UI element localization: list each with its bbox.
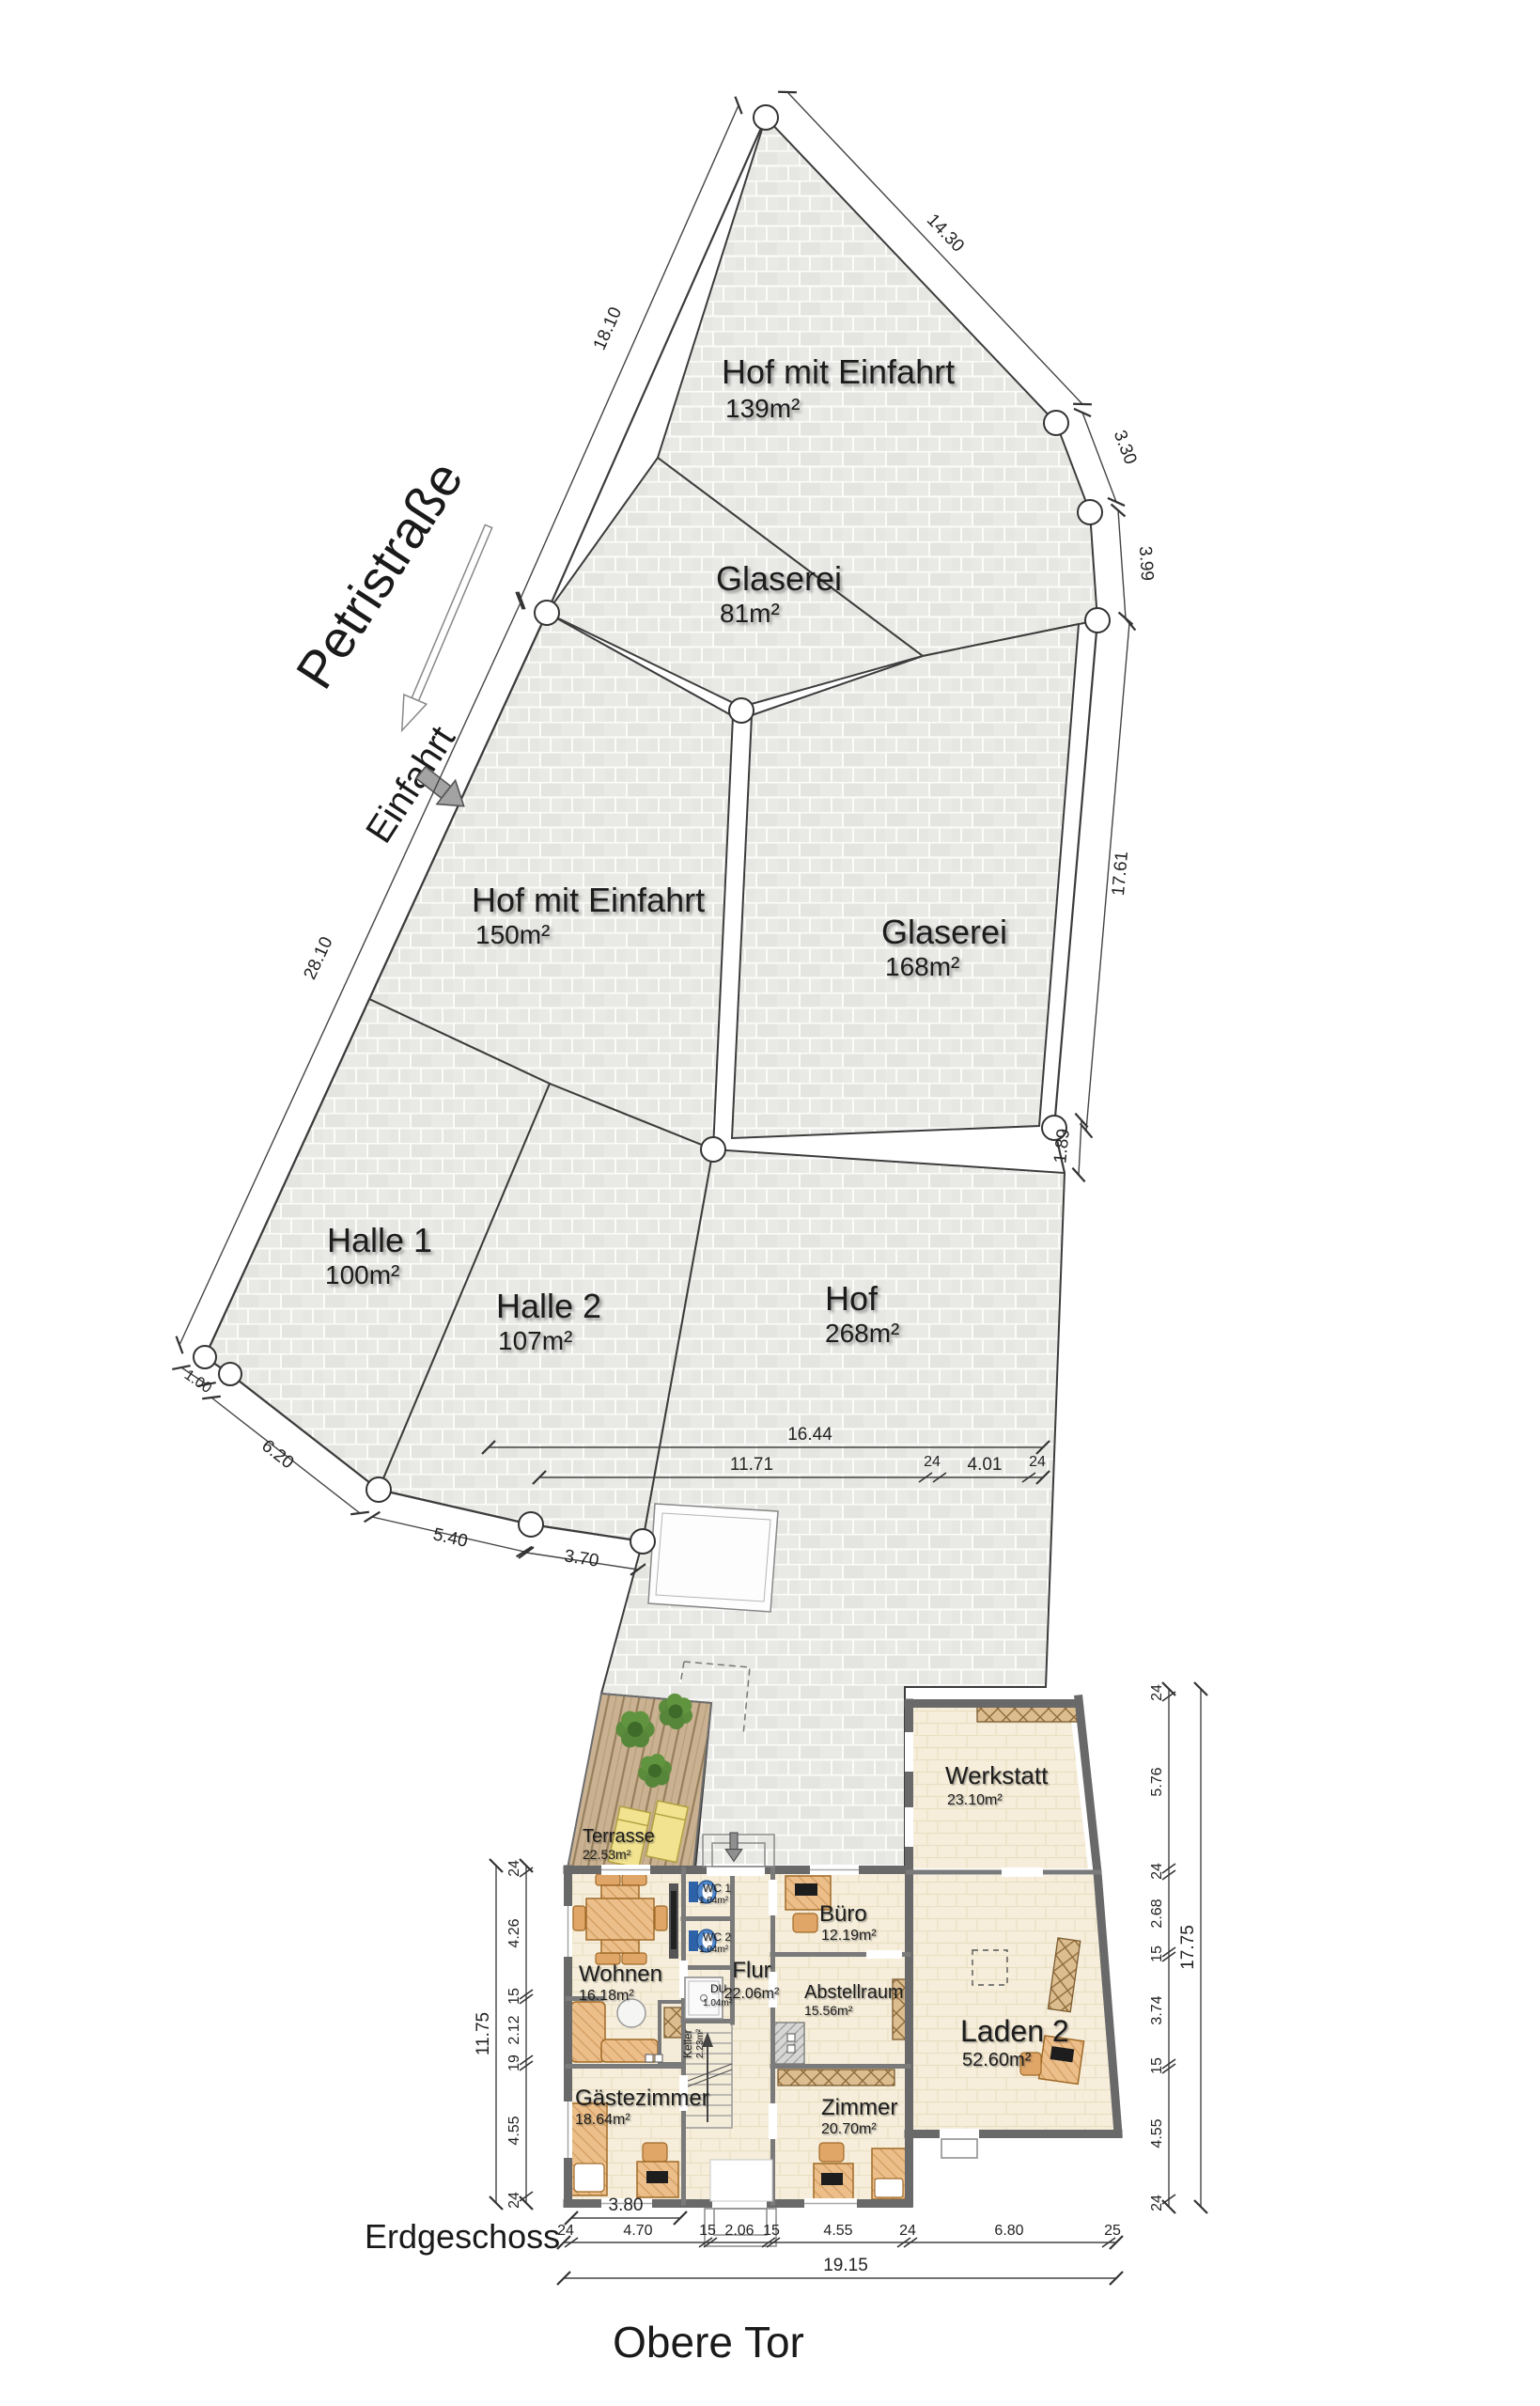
room-label: Abstellraum	[804, 1982, 904, 2003]
dim-label: 17.75	[1178, 1925, 1198, 1970]
room-label: Werkstatt	[945, 1761, 1049, 1789]
dim-label: 15	[763, 2223, 780, 2239]
parcel-label: Halle 2	[496, 1287, 601, 1325]
dim-label: 2.68	[1149, 1898, 1165, 1928]
dim-label: 11.71	[730, 1455, 773, 1475]
dim-label: 24	[899, 2223, 916, 2239]
laptop-icon	[646, 2171, 668, 2183]
street-name-label: Petristraße	[285, 450, 474, 698]
parcel-area: 100m²	[325, 1260, 399, 1289]
parcel-label: Hof	[825, 1279, 879, 1318]
dim-label: 24	[1149, 1863, 1165, 1880]
parcel-label: Hof mit Einfahrt	[472, 881, 705, 919]
dim-label: 24	[1029, 1454, 1046, 1470]
room-label: Terrasse	[583, 1826, 655, 1847]
room-label: Flur	[732, 1958, 770, 1983]
room-label: DU	[710, 1982, 726, 1995]
room-label: WC 2	[703, 1930, 731, 1944]
wall-notch	[774, 2023, 804, 2064]
dim-label: 15	[1149, 1945, 1165, 1962]
dim-label: 6.80	[994, 2223, 1023, 2239]
parcel-area: 168m²	[885, 952, 959, 981]
parcel-area: 139m²	[725, 394, 800, 423]
dim-label: 25	[1104, 2223, 1121, 2239]
room-label: Laden 2	[960, 2014, 1069, 2048]
dim-label: 11.75	[474, 2012, 493, 2055]
bed-pillow	[574, 2164, 604, 2192]
dim-label: 3.99	[1135, 545, 1158, 581]
dim-label: 24	[1149, 2195, 1165, 2211]
parcel-map	[194, 105, 1110, 1868]
floor-label: Erdgeschoss	[365, 2217, 560, 2256]
parcel-label: Halle 1	[327, 1221, 432, 1259]
dim-label: 15	[699, 2223, 716, 2239]
room-area: 16.18m²	[579, 1988, 634, 2004]
dim-label: 15	[506, 1988, 522, 2005]
room-area: 1.04m²	[703, 1998, 733, 2008]
parcel-glaserei-168-shape	[732, 624, 1079, 1138]
dim-label: 3.74	[1149, 1995, 1165, 2024]
parcel-area: 107m²	[498, 1326, 572, 1355]
dim-label: 6.20	[257, 1436, 297, 1473]
room-label: Keller	[681, 2029, 694, 2058]
room-area: 1.04m²	[699, 1896, 729, 1906]
bed-pillow	[875, 2179, 903, 2197]
parcel-label: Glaserei	[716, 559, 842, 598]
laptop-icon	[795, 1883, 817, 1896]
dim-label: 3.70	[563, 1546, 600, 1571]
dim-label: 19.15	[823, 2256, 868, 2275]
laden2-floor	[909, 1875, 1114, 2132]
page-title: Obere Tor	[613, 2318, 804, 2367]
dim-label: 4.70	[623, 2223, 652, 2239]
dim-label: 17.61	[1109, 851, 1132, 897]
room-area: 15.56m²	[804, 2003, 853, 2018]
dim-label: 3.30	[1110, 428, 1141, 467]
dim-label: 4.55	[1149, 2118, 1165, 2148]
dim-label: 28.10	[300, 934, 336, 983]
dim-label: 2.06	[724, 2223, 754, 2239]
dim-label: 15	[1149, 2057, 1165, 2074]
dim-label: 4.26	[506, 1918, 522, 1947]
room-area: 22.06m²	[724, 1986, 780, 2002]
parcel-area: 268m²	[825, 1319, 899, 1348]
parcel-area: 150m²	[475, 920, 550, 949]
room-area: 1.04m²	[699, 1945, 729, 1955]
dim-label: 24	[506, 1860, 522, 1877]
room-area: 22.53m²	[583, 1847, 631, 1862]
room-label: Wohnen	[579, 1961, 662, 1987]
dim-label: 18.10	[590, 305, 627, 353]
dim-label: 14.30	[923, 211, 968, 257]
fixture-box	[787, 2034, 795, 2041]
room-label: Zimmer	[821, 2095, 897, 2120]
sofa	[571, 2002, 605, 2062]
room-label: Gästezimmer	[575, 2086, 709, 2111]
dim-label: 1.00	[181, 1367, 214, 1398]
dim-label: 5.40	[431, 1524, 470, 1552]
dim-label: 24	[506, 2192, 522, 2209]
dining-table	[586, 1898, 654, 1940]
dim-label: 16.44	[787, 1425, 832, 1445]
dim-label: 2.12	[506, 2015, 522, 2044]
dim-label: 4.55	[823, 2223, 852, 2239]
site-floor-plan: Hof mit Einfahrt 139m² Glaserei 81m² Hof…	[0, 0, 1540, 2406]
dim-label: 3.80	[609, 2195, 644, 2215]
laptop-icon	[821, 2173, 843, 2185]
tv-board	[671, 1891, 677, 1949]
fixture-box	[787, 2045, 795, 2053]
vestibule	[710, 2160, 772, 2201]
room-area: 18.64m²	[575, 2112, 630, 2128]
dim-label: 24	[924, 1454, 941, 1470]
dim-label: 1.89	[1050, 1128, 1074, 1164]
dim-label: 5.76	[1149, 1767, 1165, 1796]
room-area: 52.60m²	[962, 2050, 1032, 2070]
room-area: 2.23m²	[695, 2028, 706, 2058]
dim-label: 24	[1149, 1684, 1165, 1701]
closet	[778, 2070, 894, 2086]
parcel-label: Glaserei	[881, 913, 1007, 951]
room-label: WC 1	[703, 1882, 731, 1895]
dim-label: 4.01	[968, 1455, 1003, 1475]
parcel-label: Hof mit Einfahrt	[722, 352, 955, 391]
dim-label: 4.55	[506, 2116, 522, 2145]
room-area: 12.19m²	[821, 1928, 877, 1944]
room-label: Büro	[819, 1901, 867, 1927]
parcel-area: 81m²	[720, 599, 780, 628]
dim-label: 19	[506, 2054, 522, 2071]
room-area: 20.70m²	[821, 2121, 877, 2137]
room-area: 23.10m²	[947, 1792, 1003, 1808]
